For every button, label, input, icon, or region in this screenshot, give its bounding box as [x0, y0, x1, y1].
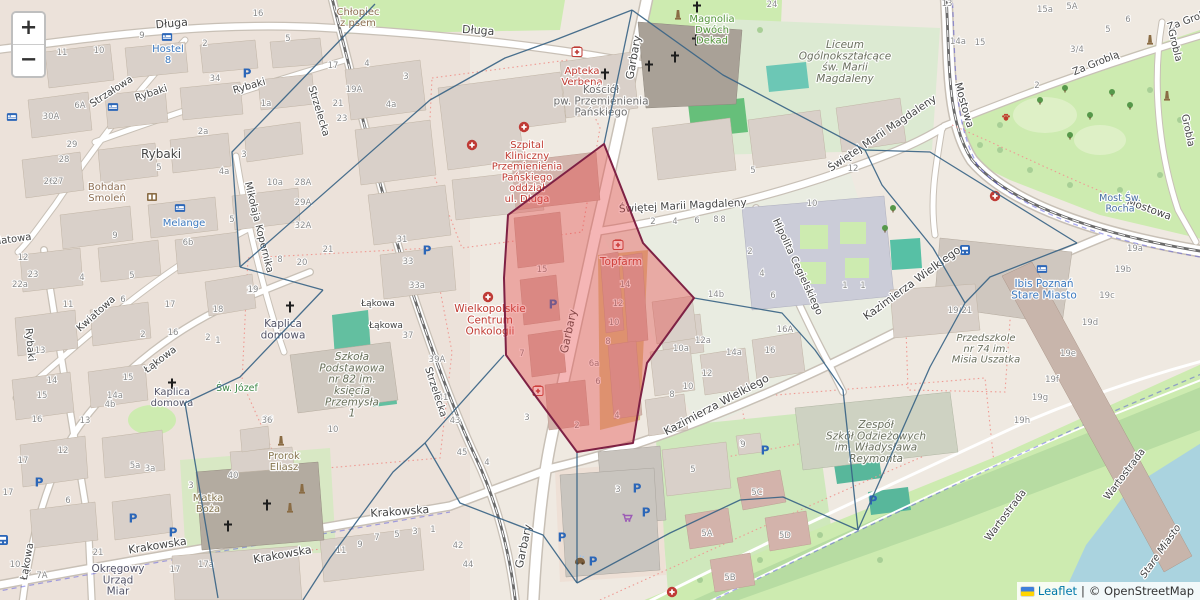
- attribution-separator: |: [1081, 584, 1085, 598]
- house-number: 39A: [429, 355, 446, 365]
- house-number: 33a: [409, 281, 425, 291]
- parking-icon: [129, 512, 138, 526]
- house-number: 27: [53, 177, 64, 187]
- house-number: 16: [168, 328, 179, 338]
- street-label: Łąkowa: [368, 321, 403, 331]
- bus-icon: [0, 535, 8, 545]
- house-number: 33: [403, 257, 414, 267]
- house-number: 28A: [295, 178, 312, 188]
- house-number: 15a: [1037, 5, 1053, 15]
- house-number: 31: [397, 235, 408, 245]
- house-number: 19b: [1115, 265, 1131, 275]
- parking-icon: [35, 476, 44, 490]
- house-number: 6: [770, 291, 775, 301]
- house-number: 14b: [708, 290, 724, 300]
- house-number: 2a: [198, 127, 209, 137]
- house-number: 17: [328, 61, 339, 71]
- house-number: 19a: [1127, 244, 1143, 254]
- house-number: 8: [720, 215, 725, 225]
- theater-icon: [147, 193, 157, 201]
- house-number: 2: [205, 333, 210, 343]
- house-number: 22a: [12, 280, 28, 290]
- house-number: 2: [650, 217, 655, 227]
- house-number: 19d: [1082, 318, 1098, 328]
- house-number: 19f: [1045, 375, 1060, 385]
- house-number: 5: [394, 530, 399, 540]
- house-number: 10: [328, 425, 339, 435]
- house-number: 10: [683, 382, 694, 392]
- house-number: 14a: [726, 348, 742, 358]
- parking-icon: [243, 67, 252, 81]
- house-number: 12: [18, 253, 29, 263]
- poi-label: Melange: [163, 218, 206, 229]
- parking-icon: [423, 244, 432, 258]
- house-number: 8: [669, 390, 674, 400]
- parking-icon: [558, 531, 567, 545]
- house-number: 19c: [1099, 291, 1115, 301]
- house-number: 7A: [36, 571, 47, 581]
- poi-label: MatkaBoża: [193, 493, 223, 515]
- house-number: 12: [58, 446, 69, 456]
- house-number: 21: [333, 99, 344, 109]
- house-number: 4: [484, 458, 489, 468]
- house-number: 14a: [950, 37, 966, 47]
- poi-label: ProrokEliasz: [268, 451, 300, 473]
- pharmacy-icon: [572, 46, 582, 56]
- house-number: 15: [37, 391, 48, 401]
- map-canvas: P: [0, 0, 1200, 600]
- house-number: 1: [842, 281, 847, 291]
- house-number: 19A: [346, 85, 363, 95]
- house-number: 42: [453, 541, 464, 551]
- house-number: 2: [140, 330, 145, 340]
- house-number: 16: [32, 415, 43, 425]
- zoom-control: + −: [11, 11, 46, 78]
- house-number: 12: [702, 369, 713, 379]
- street-label: Łąkowa: [360, 299, 395, 309]
- house-number: 5: [229, 215, 234, 225]
- house-number: 9: [357, 540, 362, 550]
- house-number: 5C: [751, 488, 762, 498]
- house-number: 5D: [779, 531, 791, 541]
- house-number: 5: [750, 166, 755, 176]
- bed-icon: [175, 204, 185, 212]
- poi-label: Ibis PoznańStare Miasto: [1011, 278, 1077, 301]
- house-number: 2: [747, 247, 752, 257]
- house-number: 3/4: [1070, 45, 1084, 55]
- house-number: 4a: [219, 167, 230, 177]
- house-number: 9: [740, 440, 745, 450]
- house-number: 4: [364, 59, 369, 69]
- hospital-icon: [467, 140, 477, 150]
- house-number: 36: [262, 416, 273, 426]
- zoom-in-button[interactable]: +: [13, 13, 44, 44]
- house-number: 13: [80, 416, 91, 426]
- poi-label: Św. Józef: [216, 382, 258, 394]
- house-number: 5: [690, 465, 695, 475]
- house-number: 10: [10, 560, 21, 570]
- house-number: 23: [28, 270, 39, 280]
- parking-icon: [761, 444, 770, 458]
- ukraine-flag-icon: [1021, 587, 1034, 596]
- house-number: 11: [63, 300, 74, 310]
- house-number: 6: [65, 496, 70, 506]
- house-number: 6: [120, 295, 125, 305]
- house-number: 5: [1105, 25, 1110, 35]
- house-number: 19: [248, 285, 259, 295]
- house-number: 40: [228, 471, 239, 481]
- house-number: 12: [848, 164, 859, 174]
- house-number: 19g: [1032, 393, 1048, 403]
- poi-label: Chłopiecz psem: [336, 7, 379, 29]
- bed-icon: [108, 103, 118, 111]
- house-number: 37: [403, 331, 414, 341]
- house-number: 1: [430, 525, 435, 535]
- house-number: 43: [450, 416, 461, 426]
- leaflet-link[interactable]: Leaflet: [1038, 584, 1077, 598]
- house-number: 5: [129, 271, 134, 281]
- house-number: 18: [213, 305, 224, 315]
- parking-icon: [589, 555, 598, 569]
- zoom-out-button[interactable]: −: [13, 44, 44, 76]
- house-number: 4: [79, 273, 84, 283]
- house-number: 1a: [261, 99, 272, 109]
- house-number: 3: [615, 485, 620, 495]
- house-number: 8: [277, 255, 282, 265]
- house-number: 13: [942, 0, 953, 9]
- house-number: 15: [123, 373, 134, 383]
- house-number: 30A: [43, 112, 60, 122]
- house-number: 9: [112, 231, 117, 241]
- house-number: 2: [202, 39, 207, 49]
- osm-attribution: © OpenStreetMap: [1089, 584, 1194, 598]
- bed-icon: [162, 33, 172, 41]
- house-number: 32A: [295, 221, 312, 231]
- house-number: 17: [170, 565, 181, 575]
- bed-icon: [1037, 265, 1047, 273]
- house-number: 34: [210, 74, 221, 84]
- parking-icon: [642, 506, 651, 520]
- house-number: 10: [807, 199, 818, 209]
- house-number: 23: [337, 114, 348, 124]
- house-number: 1: [215, 336, 220, 346]
- house-number: 5B: [724, 573, 735, 583]
- hospital-icon: [519, 122, 529, 132]
- house-number: 5: [285, 34, 290, 44]
- house-number: 6: [694, 216, 699, 226]
- house-number: 3: [403, 72, 408, 82]
- poi-label: BohdanSmoleń: [88, 182, 126, 204]
- house-number: 12a: [695, 336, 711, 346]
- house-number: 16A: [777, 325, 794, 335]
- hospital-icon: [483, 292, 493, 302]
- house-number: 3a: [145, 464, 156, 474]
- parking-icon: [633, 482, 642, 496]
- house-number: 29: [67, 140, 78, 150]
- house-number: 15: [975, 38, 986, 48]
- bed-icon: [7, 113, 17, 121]
- poi-label: Kaplicadomowa: [151, 387, 194, 409]
- house-number: 20: [297, 258, 308, 268]
- house-number: 7: [374, 533, 379, 543]
- house-number: 2: [1034, 81, 1039, 91]
- house-number: 10a: [673, 344, 689, 354]
- poi-label: Kaplicadomowa: [261, 318, 306, 341]
- poi-label: MagnoliaDwóchDekad: [689, 14, 734, 47]
- house-number: 1: [860, 281, 865, 291]
- house-number: 3: [524, 413, 529, 423]
- house-number: 8: [713, 215, 718, 225]
- house-number: 17: [18, 456, 29, 466]
- house-number: 4a: [386, 100, 397, 110]
- house-number: 28: [59, 155, 70, 165]
- house-number: 17: [165, 300, 176, 310]
- hospital-icon: [667, 587, 677, 597]
- house-number: 10a: [267, 178, 283, 188]
- house-number: 6b: [183, 238, 194, 248]
- street-label: Rybaki: [141, 147, 181, 161]
- house-number: 5a: [130, 461, 141, 471]
- house-number: 16: [253, 9, 264, 19]
- house-number: 24: [767, 0, 778, 10]
- house-number: 16: [765, 346, 776, 356]
- house-number: 44: [463, 560, 474, 570]
- house-number: 6: [1125, 15, 1130, 25]
- house-number: 3: [412, 527, 417, 537]
- house-number: 5A: [701, 529, 712, 539]
- street-label: Długa: [462, 23, 495, 38]
- house-number: 19e: [1060, 349, 1076, 359]
- house-number: 11: [57, 48, 68, 58]
- house-number: 3: [241, 150, 246, 160]
- house-number: 21: [323, 245, 334, 255]
- house-number: 9: [139, 31, 144, 41]
- house-number: 4: [672, 217, 677, 227]
- house-number: 19h: [1014, 416, 1030, 426]
- attribution-bar: Leaflet | © OpenStreetMap: [1017, 582, 1200, 600]
- house-number: 3: [188, 481, 193, 491]
- house-number: 45: [457, 448, 468, 458]
- house-number: 4: [759, 269, 764, 279]
- house-number: 4b: [105, 400, 116, 410]
- house-number: 14: [47, 376, 58, 386]
- house-number: 17: [3, 488, 14, 498]
- house-number: 5: [156, 163, 161, 173]
- house-number: 21: [93, 548, 104, 558]
- house-number: 10: [94, 46, 105, 56]
- house-number: 5A: [1066, 2, 1077, 12]
- leaflet-map[interactable]: P: [0, 0, 1200, 600]
- house-number: 6A: [74, 101, 85, 111]
